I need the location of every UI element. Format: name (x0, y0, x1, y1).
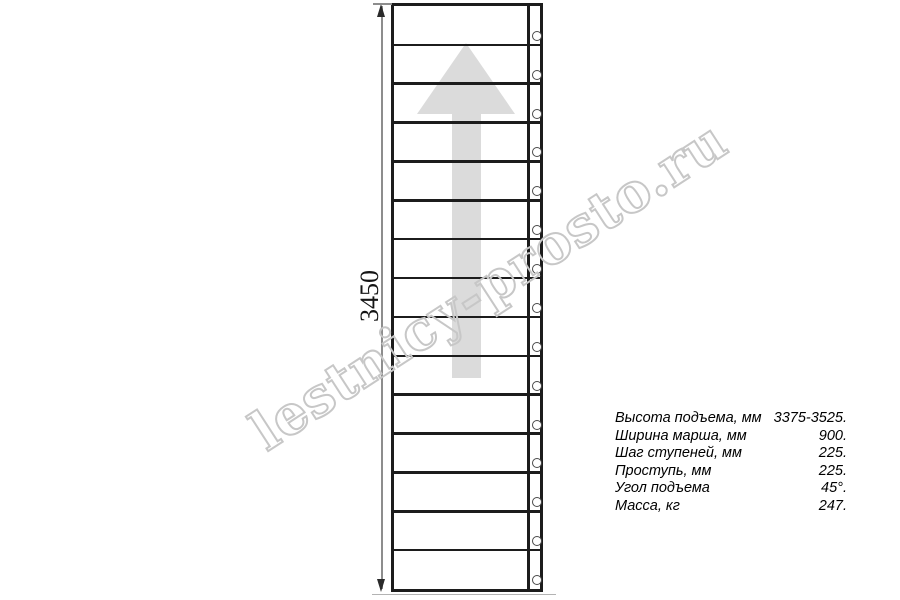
dimension-arrowhead-top (377, 4, 385, 17)
step-line (394, 549, 540, 552)
step-line (394, 510, 540, 513)
stringer-divider-line (527, 6, 530, 589)
spec-value: 45°. (821, 480, 847, 498)
spec-value: 3375-3525. (774, 410, 847, 428)
spec-label: Ширина марша, мм (615, 428, 747, 446)
bolt-circle-icon (532, 420, 542, 430)
step-line (394, 277, 540, 280)
bolt-circle-icon (532, 342, 542, 352)
spec-row: Проступь, мм225. (615, 463, 847, 481)
spec-value: 900. (819, 428, 847, 446)
step-line (394, 393, 540, 396)
bolt-circle-icon (532, 225, 542, 235)
bolt-circle-icon (532, 31, 542, 41)
spec-label: Масса, кг (615, 498, 680, 516)
bolt-circle-icon (532, 497, 542, 507)
spec-row: Ширина марша, мм900. (615, 428, 847, 446)
spec-label: Угол подъема (615, 480, 710, 498)
extension-line-top (373, 3, 392, 5)
spec-value: 225. (819, 463, 847, 481)
spec-row: Угол подъема45°. (615, 480, 847, 498)
bolt-circle-icon (532, 458, 542, 468)
step-line (394, 238, 540, 241)
step-line (394, 316, 540, 319)
step-line (394, 160, 540, 163)
extension-line-bottom (372, 594, 556, 595)
step-line (394, 199, 540, 202)
step-line (394, 82, 540, 85)
specs-table: Высота подъема, мм3375-3525.Ширина марша… (615, 410, 847, 515)
step-line (394, 471, 540, 474)
dimension-label: 3450 (357, 246, 383, 346)
spec-value: 225. (819, 445, 847, 463)
bolt-circle-icon (532, 381, 542, 391)
staircase-plan (391, 3, 543, 592)
bolt-circle-icon (532, 186, 542, 196)
bolt-circle-icon (532, 536, 542, 546)
staircase-technical-drawing: 3450 Высота подъема, мм3375-3525.Ширина … (0, 0, 900, 600)
step-line (394, 44, 540, 47)
step-line (394, 121, 540, 124)
step-line (394, 355, 540, 358)
bolt-circle-icon (532, 575, 542, 585)
step-line (394, 432, 540, 435)
bolt-circle-icon (532, 264, 542, 274)
bolt-circle-icon (532, 303, 542, 313)
bolt-circle-icon (532, 147, 542, 157)
spec-label: Высота подъема, мм (615, 410, 762, 428)
spec-row: Шаг ступеней, мм225. (615, 445, 847, 463)
bolt-circle-icon (532, 109, 542, 119)
spec-label: Проступь, мм (615, 463, 711, 481)
spec-row: Масса, кг247. (615, 498, 847, 516)
spec-label: Шаг ступеней, мм (615, 445, 742, 463)
spec-value: 247. (819, 498, 847, 516)
spec-row: Высота подъема, мм3375-3525. (615, 410, 847, 428)
dimension-arrowhead-bottom (377, 579, 385, 592)
bolt-circle-icon (532, 70, 542, 80)
